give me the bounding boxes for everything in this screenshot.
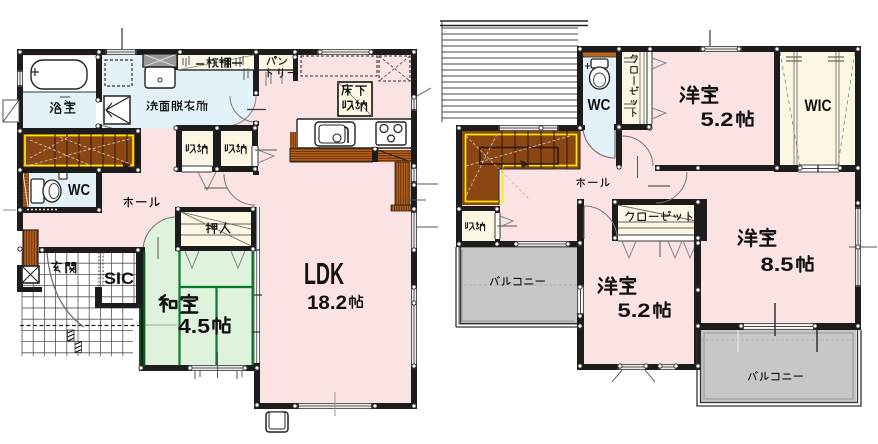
svg-text:WC: WC <box>68 182 90 199</box>
svg-text:SIC: SIC <box>104 270 134 288</box>
svg-text:8.5: 8.5 <box>761 254 794 276</box>
svg-text:5.2: 5.2 <box>701 109 734 131</box>
svg-text:18.2: 18.2 <box>307 292 347 314</box>
svg-text:WC: WC <box>588 97 611 114</box>
svg-text:5.2: 5.2 <box>618 300 651 322</box>
svg-text:4.5: 4.5 <box>178 315 210 338</box>
svg-text:WIC: WIC <box>805 96 832 115</box>
svg-text:LDK: LDK <box>304 256 344 291</box>
